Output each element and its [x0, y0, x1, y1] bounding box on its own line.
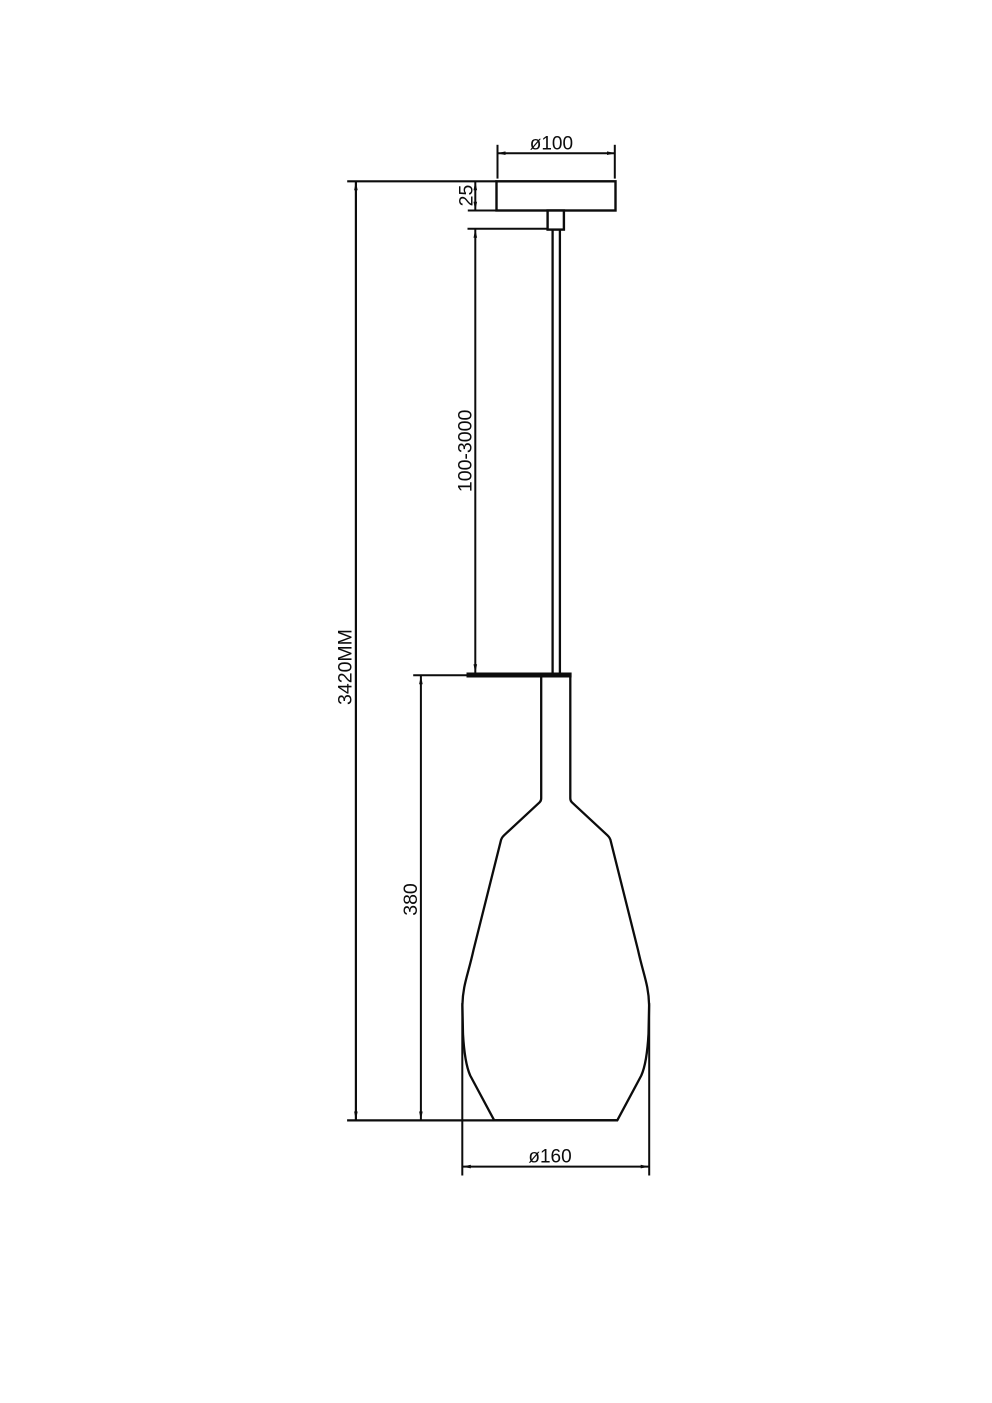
svg-text:25: 25 — [455, 185, 477, 207]
svg-text:100-3000: 100-3000 — [455, 410, 477, 493]
svg-text:ø100: ø100 — [530, 133, 573, 154]
svg-text:380: 380 — [400, 883, 422, 916]
svg-text:3420MM: 3420MM — [334, 629, 356, 705]
svg-text:ø160: ø160 — [528, 1147, 571, 1168]
